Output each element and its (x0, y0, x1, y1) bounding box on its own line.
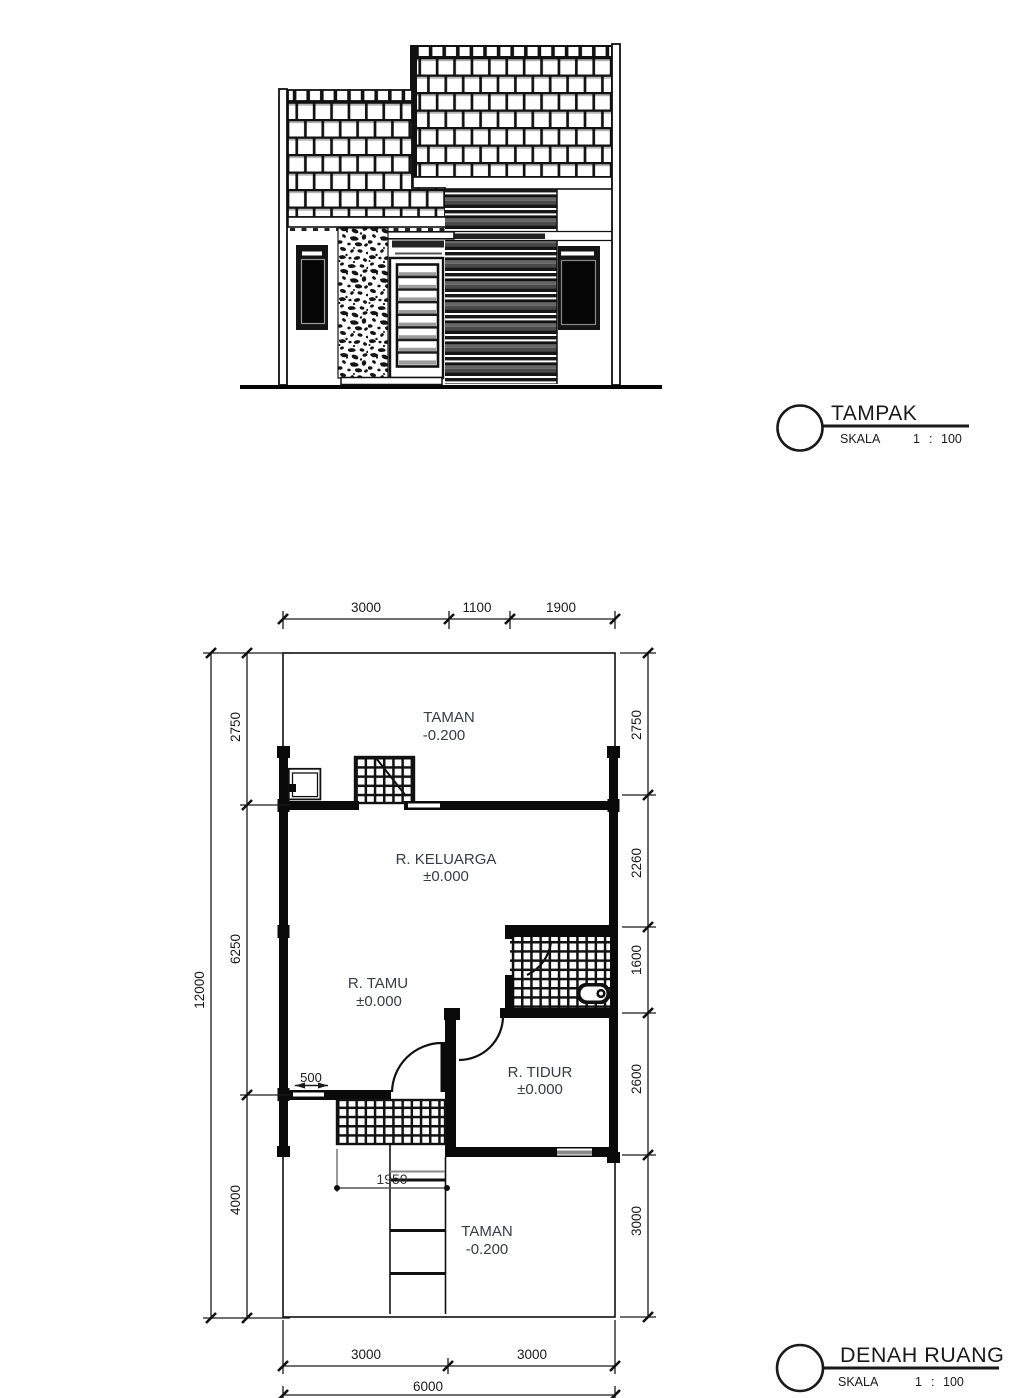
svg-text:R. TIDUR: R. TIDUR (508, 1064, 573, 1081)
svg-text:SKALA: SKALA (838, 1375, 879, 1389)
svg-text:1950: 1950 (376, 1171, 407, 1187)
svg-text:3000: 3000 (351, 600, 381, 615)
svg-text:6250: 6250 (228, 934, 243, 964)
svg-text:2600: 2600 (629, 1064, 644, 1094)
svg-text:±0.000: ±0.000 (423, 868, 469, 885)
svg-text:-0.200: -0.200 (466, 1241, 509, 1258)
svg-text:3000: 3000 (351, 1347, 381, 1362)
svg-text:TAMAN: TAMAN (461, 1223, 512, 1240)
svg-text:6000: 6000 (413, 1379, 443, 1394)
svg-text:12000: 12000 (192, 971, 207, 1009)
svg-text:100: 100 (943, 1375, 964, 1389)
svg-text:DENAH RUANG: DENAH RUANG (840, 1343, 1004, 1367)
svg-text:R. KELUARGA: R. KELUARGA (396, 851, 497, 868)
svg-text:2260: 2260 (629, 848, 644, 878)
svg-text:SKALA: SKALA (840, 432, 881, 446)
svg-text:1600: 1600 (629, 945, 644, 975)
svg-text::: : (929, 432, 932, 446)
svg-text:1900: 1900 (546, 600, 576, 615)
svg-text:TAMAN: TAMAN (423, 709, 474, 726)
svg-text:4000: 4000 (228, 1185, 243, 1215)
svg-text:±0.000: ±0.000 (517, 1081, 563, 1098)
svg-text:-0.200: -0.200 (423, 727, 466, 744)
svg-text:TAMPAK: TAMPAK (831, 402, 917, 425)
svg-text::: : (931, 1375, 934, 1389)
svg-text:R. TAMU: R. TAMU (348, 975, 408, 992)
svg-text:1100: 1100 (462, 600, 491, 615)
svg-text:100: 100 (941, 432, 962, 446)
svg-text:1: 1 (913, 432, 920, 446)
svg-text:3000: 3000 (629, 1206, 644, 1236)
svg-text:2750: 2750 (629, 710, 644, 740)
svg-text:3000: 3000 (517, 1347, 547, 1362)
svg-text:2750: 2750 (228, 712, 243, 742)
svg-text:±0.000: ±0.000 (356, 993, 402, 1010)
svg-text:1: 1 (915, 1375, 922, 1389)
